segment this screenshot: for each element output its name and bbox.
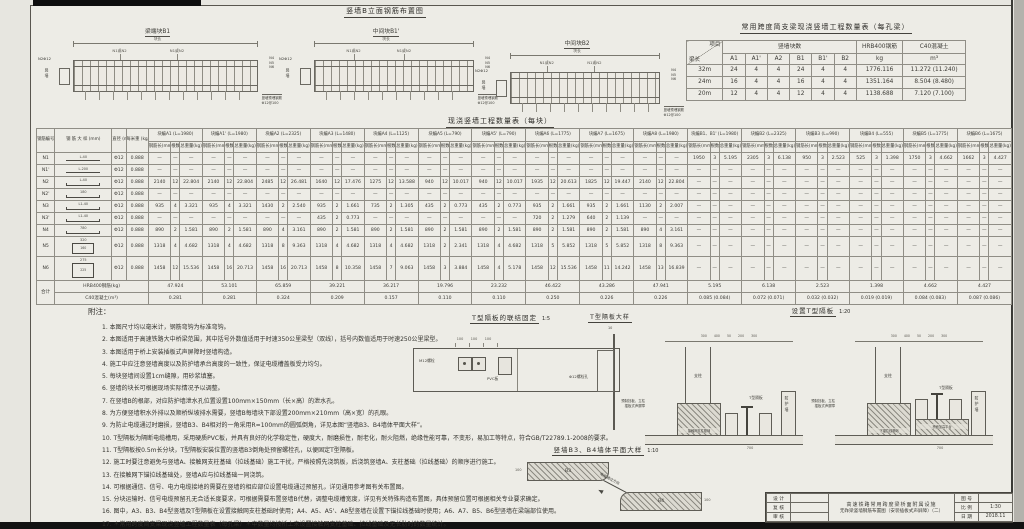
weight-cell: 1.661 [342, 201, 364, 213]
empty-cell: — [818, 165, 827, 177]
catenary-post: 支柱 [875, 347, 901, 405]
sub-header: 总重量(kg) [288, 142, 310, 153]
date-value: 2018.11 [979, 512, 1013, 521]
totals-concrete-value: 0.087 (0.086) [957, 293, 1011, 305]
install-detail-scale: 1:20 [839, 309, 850, 315]
count-cell: 4 [279, 225, 288, 237]
count-cell: 12 [656, 177, 665, 189]
sub-header: 总重量(kg) [665, 142, 687, 153]
install-detail: 设置T型隔板1:20 300 400 50 200 300 支柱 接触网支柱基础… [640, 305, 1000, 450]
fix-detail-scale: 1:5 [542, 316, 550, 322]
empty-cell: — [764, 213, 773, 225]
rebar-id: N6 [37, 257, 55, 281]
empty-cell: — [818, 225, 827, 237]
weight-cell: 5.195 [719, 153, 741, 165]
rebar-id: N3' [37, 213, 55, 225]
length-cell: 890 [472, 225, 494, 237]
title-block-table: 设 计 高速铁路常用跨度梁桥面附属设施 无砟梁竖墙钢筋布置图（安装插板式声屏障）… [766, 493, 1013, 522]
length-cell: 2140 [634, 177, 656, 189]
empty-cell: — [903, 257, 925, 281]
span-length-cell: 24m [687, 77, 723, 89]
empty-cell: — [849, 201, 871, 213]
rebar-id: N4 [37, 225, 55, 237]
sketch-dim: L1-40 [79, 203, 89, 206]
empty-cell: — [742, 165, 764, 177]
empty-cell: — [881, 213, 903, 225]
platform-label: 桥面加高平台 [916, 424, 968, 429]
empty-cell: — [688, 177, 710, 189]
length-cell: 435 [418, 201, 440, 213]
empty-cell: — [903, 213, 925, 225]
install-detail-title-text: 设置T型隔板 [790, 305, 836, 317]
closed-stirrup-icon: 160 [72, 243, 94, 254]
totals-concrete-value: 0.281 [202, 293, 256, 305]
length-cell: 1318 [148, 237, 170, 257]
fix-dim-3: 100 [481, 337, 495, 341]
empty-cell: — [989, 257, 1012, 281]
weight-cell: 5.178 [504, 257, 526, 281]
count-cell: 12 [494, 177, 503, 189]
sub-header: 根数 [872, 142, 881, 153]
empty-cell: — [980, 213, 989, 225]
empty-cell: — [450, 153, 472, 165]
scale-value: 1:30 [979, 503, 1013, 512]
scan-edge-right [1014, 0, 1024, 529]
concrete-cell: 11.272 (11.240) [903, 65, 966, 77]
sketch-inner-dim: 225 [80, 269, 86, 272]
empty-cell: — [364, 189, 386, 201]
sub-header: 根数 [926, 142, 935, 153]
empty-cell: — [279, 213, 288, 225]
count-cell: 4 [225, 201, 234, 213]
count-cell: 12 [548, 257, 557, 281]
empty-cell: — [494, 189, 503, 201]
empty-cell: — [611, 165, 633, 177]
empty-cell: — [180, 189, 202, 201]
xsec-dims: 300 400 50 200 300 [855, 334, 983, 338]
empty-cell: — [288, 189, 310, 201]
weight-cell: 1.581 [396, 225, 418, 237]
empty-cell: — [903, 165, 925, 177]
empty-cell: — [225, 213, 234, 225]
empty-cell: — [202, 165, 224, 177]
sketch-inner-dim: 160 [80, 247, 86, 250]
count-cell: 12 [440, 177, 449, 189]
sub-header: 总重量(kg) [342, 142, 364, 153]
count-cell: 4 [494, 257, 503, 281]
group-header: 块编A7 (L=1675) [580, 129, 634, 142]
count-cell: 3 [440, 257, 449, 281]
group-header: 块编B3 (L=990) [796, 129, 850, 142]
weight-cell: 10.358 [342, 257, 364, 281]
sketch-dim: L-40 [80, 179, 87, 182]
right-bar-labels: N4N5N6 [671, 68, 676, 82]
right-bar-label: N4 [485, 56, 490, 61]
empty-cell: — [935, 213, 957, 225]
embedded-bar-note-line1: 竖墙预埋钢筋 [664, 108, 684, 113]
empty-cell: — [881, 201, 903, 213]
empty-cell: — [881, 177, 903, 189]
checker-value [791, 503, 829, 512]
empty-cell: — [364, 165, 386, 177]
empty-cell: — [148, 165, 170, 177]
span-quantity-table: 项目梁长竖墙块数HRB400钢筋C40混凝土A1A1'A2B1B1'B2kgm³… [686, 40, 966, 101]
empty-cell: — [773, 165, 795, 177]
empty-cell: — [557, 153, 579, 165]
left-header-0: 钢筋编号 [37, 129, 55, 153]
empty-cell: — [710, 257, 719, 281]
length-dim-label: 块长 [55, 36, 260, 42]
block-col-header: A1 [723, 54, 745, 65]
approver-value [791, 512, 829, 521]
empty-cell: — [386, 189, 395, 201]
bottom-band-line [74, 85, 257, 86]
empty-cell: — [818, 237, 827, 257]
empty-cell: — [903, 201, 925, 213]
count-cell: 4 [171, 201, 180, 213]
weight-cell: 1.398 [881, 153, 903, 165]
sheet-no-label: 图 号 [955, 494, 979, 503]
protection-wall-label: 防护墙 [975, 396, 980, 413]
totals-steel-value: 65.859 [256, 281, 310, 293]
empty-cell: — [872, 165, 881, 177]
length-cell: 890 [256, 225, 278, 237]
rebar-id: N5 [37, 237, 55, 257]
totals-concrete-row: C40混凝土(m³)0.2810.2810.3240.2090.1570.110… [37, 293, 1012, 305]
sub-header: 根数 [279, 142, 288, 153]
weight-cell: 26.481 [288, 177, 310, 189]
length-cell: 940 [418, 177, 440, 189]
rebar-unit-weight: 0.888 [126, 225, 148, 237]
sketch-dim: L1-40 [79, 215, 89, 218]
sub-header: 钢筋长(mm) [526, 142, 548, 153]
empty-cell: — [719, 237, 741, 257]
length-cell: 890 [634, 225, 656, 237]
empty-cell: — [225, 189, 234, 201]
weight-cell: 0.773 [450, 201, 472, 213]
weight-cell: 1.581 [180, 225, 202, 237]
corner-top: 项目 [709, 42, 720, 48]
right-bar-label: N6 [671, 77, 676, 82]
empty-cell: — [957, 257, 979, 281]
count-cell: 2 [386, 201, 395, 213]
sub-header: 总重量(kg) [557, 142, 579, 153]
protection-wall-label: 防护墙 [785, 396, 790, 413]
empty-cell: — [872, 201, 881, 213]
bar-callout: N1或N2 [112, 48, 126, 54]
block-count-cell: 24 [723, 65, 745, 77]
sub-header: 总重量(kg) [827, 142, 849, 153]
sub-header: 根数 [980, 142, 989, 153]
empty-cell: — [957, 201, 979, 213]
empty-cell: — [234, 189, 256, 201]
rebar-unit-weight: 0.888 [126, 237, 148, 257]
rebar-id: N1 [37, 153, 55, 165]
group-header: 块编A5' (L=790) [472, 129, 526, 142]
empty-cell: — [827, 213, 849, 225]
empty-cell: — [494, 213, 503, 225]
empty-cell: — [742, 225, 764, 237]
empty-cell: — [557, 165, 579, 177]
foundation-label: 接触网支柱基础 [678, 428, 720, 433]
b3-end-dim: 100 [515, 468, 521, 472]
steel-cell: 1351.164 [856, 77, 902, 89]
length-dimline [73, 43, 258, 44]
corner-cell: 项目梁长 [687, 41, 723, 65]
rebar-unit-weight: 0.888 [126, 201, 148, 213]
length-cell: 640 [580, 213, 602, 225]
rebar-sketch-cell: 780 [55, 225, 112, 237]
length-cell: 2305 [742, 153, 764, 165]
totals-concrete-value: 0.226 [634, 293, 688, 305]
empty-cell: — [333, 165, 342, 177]
length-cell: 935 [526, 201, 548, 213]
block-count-cell: 4 [834, 77, 856, 89]
totals-steel-value: 47.941 [634, 281, 688, 293]
elevation-diagram: 中间块B1'块长N1或N2N1或N2N2Φ12竖墙N4N5N6竖墙预埋钢筋Φ12… [296, 26, 476, 106]
rebar-unit-weight: 0.888 [126, 257, 148, 281]
rebar-grid [510, 72, 660, 104]
empty-cell: — [526, 165, 548, 177]
empty-cell: — [989, 213, 1012, 225]
protection-wall: 防护墙 [781, 391, 796, 438]
sound-barrier-note: 预制挡板、立柱 插板式声屏障 [609, 399, 645, 409]
empty-cell: — [719, 213, 741, 225]
empty-cell: — [935, 225, 957, 237]
xsec-bottom-dim: 700 [915, 446, 965, 450]
length-cell: 1458 [364, 257, 386, 281]
big-detail-top-dim: 10 [608, 326, 612, 330]
empty-cell: — [665, 189, 687, 201]
main-quantity-table: 钢筋编号钢 筋 大 样 (mm)直径 (mm)每米重 (kg/m)块编A1 (L… [36, 128, 1012, 305]
empty-cell: — [602, 189, 611, 201]
bar-callout: N1或N2 [346, 48, 360, 54]
main-table-title-text: 现浇竖墙工程数量表（每块） [446, 116, 554, 128]
weight-cell: 20.713 [288, 257, 310, 281]
block-count-cell: 4 [834, 65, 856, 77]
empty-cell: — [225, 153, 234, 165]
empty-cell: — [418, 165, 440, 177]
empty-cell: — [926, 189, 935, 201]
empty-cell: — [656, 153, 665, 165]
weight-cell: 10.017 [504, 177, 526, 189]
length-cell: 890 [310, 225, 332, 237]
sound-barrier-note-line2: 插板式声屏障 [799, 404, 835, 409]
empty-cell: — [557, 189, 579, 201]
b4-end-dim: 100 [704, 498, 710, 502]
empty-cell: — [742, 213, 764, 225]
t-board-label: T型隔板 [749, 395, 763, 401]
length-cell: 1458 [634, 257, 656, 281]
empty-cell: — [980, 189, 989, 201]
sub-header: 总重量(kg) [881, 142, 903, 153]
empty-cell: — [872, 189, 881, 201]
empty-cell: — [342, 165, 364, 177]
empty-cell: — [234, 153, 256, 165]
count-cell: 5 [548, 237, 557, 257]
totals-steel-value: 36.217 [364, 281, 418, 293]
empty-cell: — [710, 177, 719, 189]
empty-cell: — [719, 177, 741, 189]
empty-cell: — [764, 165, 773, 177]
length-cell: 890 [364, 225, 386, 237]
empty-cell: — [796, 257, 818, 281]
count-cell: 12 [225, 177, 234, 189]
sketch-dim: L-40 [80, 156, 87, 159]
block-count-cell: 16 [723, 77, 745, 89]
block-count-cell: 4 [812, 89, 834, 101]
empty-cell: — [494, 165, 503, 177]
empty-cell: — [611, 189, 633, 201]
weight-cell: 15.536 [180, 257, 202, 281]
empty-cell: — [418, 189, 440, 201]
length-cell: 1458 [418, 257, 440, 281]
sub-header: 根数 [764, 142, 773, 153]
weight-cell: 9.063 [396, 257, 418, 281]
count-cell: 2 [440, 225, 449, 237]
empty-cell: — [719, 225, 741, 237]
empty-cell: — [796, 165, 818, 177]
rebar-row: N1L-40Φ120.888——————————————————————————… [37, 153, 1012, 165]
rebar-sketch: 275225 [55, 259, 111, 278]
empty-cell: — [688, 213, 710, 225]
weight-cell: 3.321 [180, 201, 202, 213]
weight-cell: 4.662 [935, 153, 957, 165]
empty-cell: — [742, 177, 764, 189]
t-board-cap-outline [597, 350, 614, 392]
empty-cell: — [688, 165, 710, 177]
count-cell: 4 [171, 237, 180, 257]
length-cell: 1318 [202, 237, 224, 257]
bolt-hole-label: Φ12螺栓孔 [569, 374, 588, 380]
bolt-label: M12螺栓 [419, 358, 435, 364]
empty-cell: — [903, 237, 925, 257]
count-cell: 4 [656, 225, 665, 237]
empty-cell: — [980, 165, 989, 177]
empty-cell: — [849, 237, 871, 257]
empty-cell: — [611, 153, 633, 165]
block-col-header: B1' [812, 54, 834, 65]
empty-cell: — [773, 213, 795, 225]
length-dim-label: 块长 [296, 36, 476, 42]
rebar-dia: Φ12 [112, 153, 126, 165]
xsec-dimline [855, 341, 983, 342]
bottom-band-line [315, 85, 473, 86]
totals-steel-value: 4.427 [957, 281, 1011, 293]
count-cell: 8 [333, 257, 342, 281]
empty-cell: — [872, 213, 881, 225]
drawing-sheet: 竖墙B立面钢筋布置图 梁端块B1块长N1或N2N1或N2N2Φ12竖墙N4N5N… [0, 0, 1024, 529]
sub-header: 钢筋长(mm) [418, 142, 440, 153]
empty-cell: — [796, 225, 818, 237]
right-bar-label: N4 [671, 68, 676, 73]
length-cell: 1318 [472, 237, 494, 257]
span-table-row: 32m244424441776.11611.272 (11.240) [687, 65, 966, 77]
empty-cell: — [796, 201, 818, 213]
length-cell: 935 [310, 201, 332, 213]
rebar-row: N5320160Φ120.888131844.682131844.6821318… [37, 237, 1012, 257]
empty-cell: — [504, 189, 526, 201]
empty-cell: — [202, 213, 224, 225]
install-detail-title: 设置T型隔板1:20 [750, 305, 890, 317]
embedded-bar-note-line2: Φ12@100 [664, 113, 684, 118]
span-length-cell: 20m [687, 89, 723, 101]
plan-detail-title-text: 竖墙B3、B4墙体平面大样 [552, 444, 645, 456]
count-cell: 2 [225, 225, 234, 237]
empty-cell: — [742, 201, 764, 213]
empty-cell: — [764, 257, 773, 281]
length-cell: 1318 [256, 237, 278, 257]
empty-cell: — [710, 201, 719, 213]
sub-header: 钢筋长(mm) [903, 142, 925, 153]
empty-cell: — [202, 153, 224, 165]
rebar-dia: Φ12 [112, 225, 126, 237]
count-cell: 2 [333, 225, 342, 237]
rebar-dia: Φ12 [112, 213, 126, 225]
cable-direction-arrowhead [597, 488, 603, 494]
block-count-cell: 4 [834, 89, 856, 101]
left-bar-label: N2Φ12 [475, 68, 488, 73]
concrete-cell: 8.504 (8.480) [903, 77, 966, 89]
empty-cell: — [256, 189, 278, 201]
empty-cell: — [665, 165, 687, 177]
weight-cell: 3.884 [450, 257, 472, 281]
sub-header: 根数 [818, 142, 827, 153]
rebar-unit-weight: 0.888 [126, 165, 148, 177]
dowel-bars [85, 91, 250, 100]
count-cell: 2 [494, 201, 503, 213]
length-cell: 935 [580, 201, 602, 213]
elevation-section-title-text: 竖墙B立面钢筋布置图 [344, 6, 426, 18]
totals-concrete-value: 0.157 [364, 293, 418, 305]
checker-label: 复 核 [767, 503, 791, 512]
empty-cell: — [818, 177, 827, 189]
empty-cell: — [827, 237, 849, 257]
empty-cell: — [764, 177, 773, 189]
notes-heading: 附注： [88, 306, 111, 317]
weight-cell: 20.613 [557, 177, 579, 189]
empty-cell: — [634, 213, 656, 225]
rebar-dia: Φ12 [112, 177, 126, 189]
empty-cell: — [396, 165, 418, 177]
board-joint-line [517, 349, 518, 391]
cross-section-right: 300 400 50 200 300 支柱 下锚拉线基础 T型隔板 桥面加高平台… [835, 333, 995, 445]
count-cell: 12 [602, 177, 611, 189]
fix-detail-title-text: T型隔板的联结固定 [470, 312, 539, 324]
empty-cell: — [773, 201, 795, 213]
totals-concrete-value: 0.324 [256, 293, 310, 305]
rebar-row: N3L1-40Φ120.88893543.32193543.321143022.… [37, 201, 1012, 213]
empty-cell: — [504, 213, 526, 225]
block-col-header: B1 [790, 54, 812, 65]
weight-cell: 1.661 [611, 201, 633, 213]
empty-cell: — [688, 201, 710, 213]
top-band-line [74, 66, 257, 67]
group-header: 块编A3 (L=1480) [310, 129, 364, 142]
weight-cell: 4.682 [234, 237, 256, 257]
date-label: 日 期 [955, 512, 979, 521]
empty-cell: — [849, 189, 871, 201]
sub-header: 总重量(kg) [234, 142, 256, 153]
length-cell: 1640 [310, 177, 332, 189]
empty-cell: — [148, 189, 170, 201]
pvc-label: PVC板 [487, 376, 498, 382]
rebar-sketch: L-200 [55, 168, 111, 173]
empty-cell: — [849, 213, 871, 225]
rebar-dia: Φ12 [112, 201, 126, 213]
block-count-header: 竖墙块数 [723, 41, 856, 54]
rebar-unit-weight: 0.888 [126, 213, 148, 225]
